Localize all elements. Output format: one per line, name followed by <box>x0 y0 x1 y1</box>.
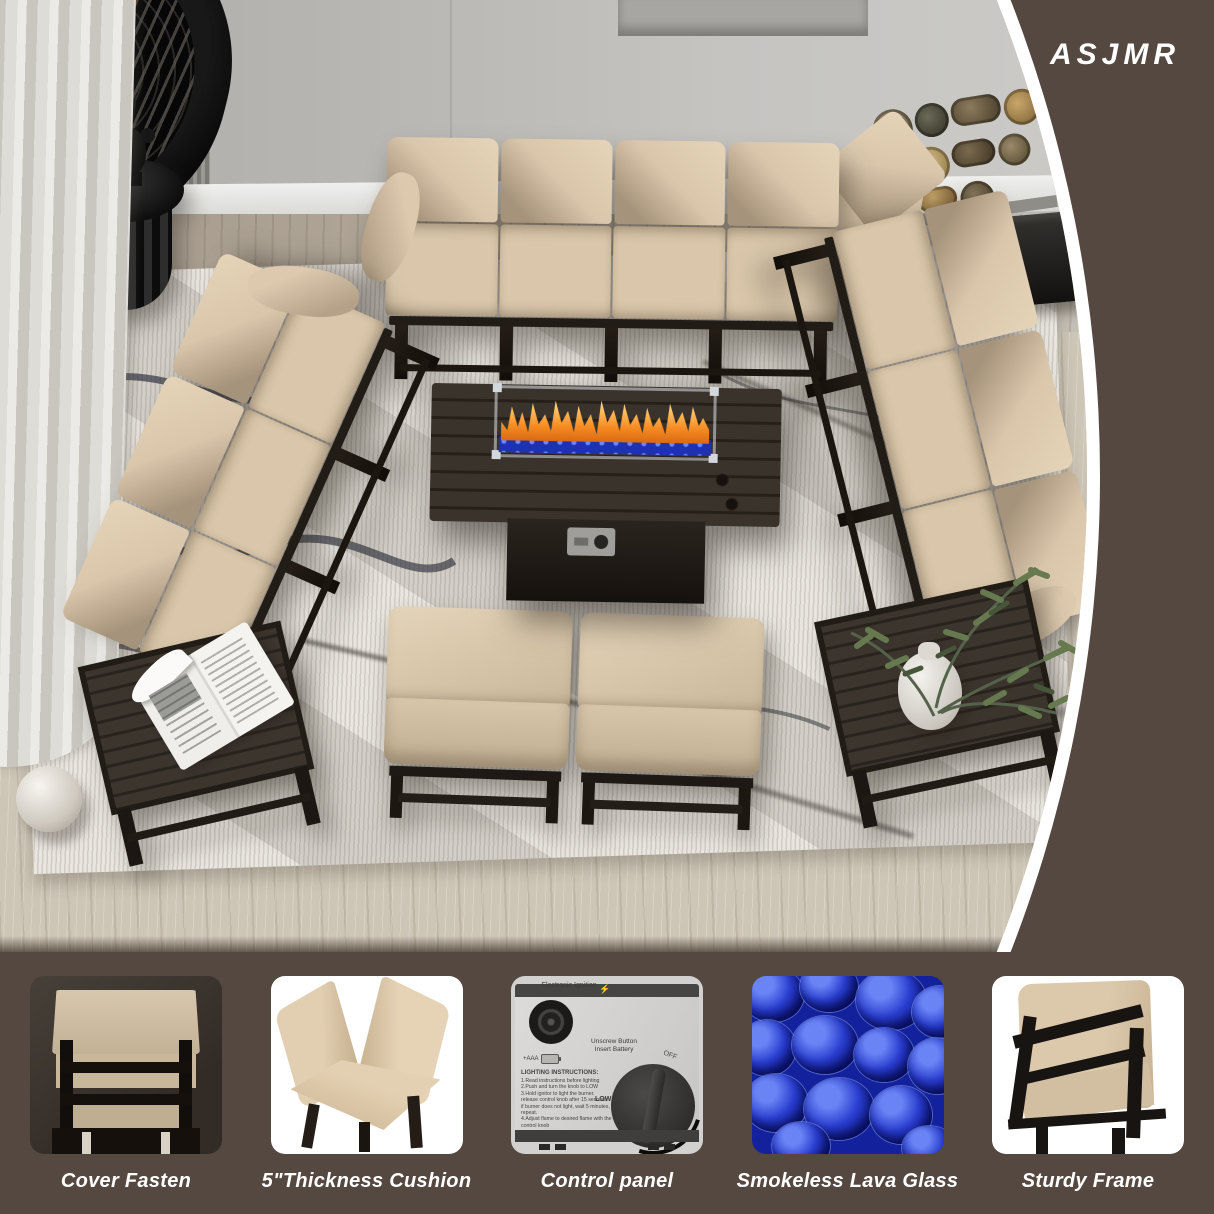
sofa-leg <box>773 244 829 270</box>
feature-caption: 5"Thickness Cushion <box>262 1170 472 1193</box>
cover-fasten-thumbnail <box>30 976 222 1154</box>
panel-foot <box>539 1144 550 1150</box>
glass-bead <box>854 1028 914 1082</box>
seat-cushion <box>386 605 573 707</box>
back-cushion <box>614 140 726 226</box>
back-cushion <box>500 138 612 224</box>
glass-bead <box>752 1020 796 1076</box>
log <box>950 137 998 170</box>
feature-strip: Cover Fasten 5"Thickness Cushion Electro… <box>0 952 1214 1214</box>
battery-icon <box>541 1054 559 1064</box>
back-cushion <box>575 704 761 776</box>
panel-foot <box>555 1144 566 1150</box>
control-panel-thumbnail: Electronic Ignition ⚡ +AAA Unscrew Butto… <box>511 976 703 1154</box>
frame-post <box>1126 1028 1144 1138</box>
feature-lava-glass: Smokeless Lava Glass <box>752 976 944 1214</box>
ignition-button <box>529 1000 573 1044</box>
seat-cushion <box>499 224 612 318</box>
knob-low-label: LOW <box>595 1096 611 1103</box>
battery-row: +AAA <box>523 1054 559 1064</box>
feature-caption: Sturdy Frame <box>1022 1170 1155 1193</box>
panel-bottom-bar <box>515 1130 699 1142</box>
brand-logo: ASJMR <box>1050 38 1180 72</box>
armless-chair <box>575 612 765 788</box>
back-cushions <box>387 137 840 227</box>
sheer-curtain <box>0 0 136 770</box>
feature-caption: Cover Fasten <box>61 1170 191 1193</box>
lava-glass-thumbnail <box>752 976 944 1154</box>
seat-cushion <box>612 226 725 320</box>
wall-recess <box>618 0 868 36</box>
panel-foot <box>664 1144 675 1150</box>
chair-foot <box>82 1132 91 1154</box>
glass-bracket <box>493 383 502 392</box>
feature-caption: Smokeless Lava Glass <box>737 1170 959 1193</box>
chair-foot <box>161 1132 170 1154</box>
product-image: ASJMR Cover Fasten <box>0 0 1214 1214</box>
feature-caption: Control panel <box>541 1170 674 1193</box>
frame-bar <box>60 1094 192 1105</box>
lightning-icon: ⚡ <box>599 984 610 995</box>
chair-base <box>52 1128 200 1154</box>
seat-cushion <box>578 612 765 714</box>
hero-section: ASJMR <box>0 0 1214 952</box>
fire-pit-table <box>428 383 782 605</box>
chair-leg <box>359 1122 370 1152</box>
log <box>912 101 951 140</box>
sectional-sofa-top <box>384 137 839 385</box>
glass-bracket <box>710 387 719 396</box>
panel-slot <box>574 537 588 545</box>
living-room-photo <box>0 0 1214 952</box>
cushion-thumbnail <box>271 976 463 1154</box>
control-panel-front <box>567 527 615 556</box>
seat-cushions <box>385 223 838 321</box>
burner <box>499 390 712 456</box>
table-base <box>506 518 705 603</box>
olive-plant <box>826 508 1086 738</box>
panel-foot <box>648 1144 659 1150</box>
chair-backrest <box>52 990 200 1054</box>
decor-sphere <box>16 766 82 832</box>
feature-cover-fasten: Cover Fasten <box>30 976 222 1214</box>
photo-bottom-shade <box>0 936 1214 952</box>
armless-chairs <box>383 605 765 788</box>
log <box>996 131 1033 168</box>
back-cushion <box>728 142 840 228</box>
frame-bar <box>60 1062 192 1073</box>
back-cushion <box>384 697 570 769</box>
glass-bead <box>800 976 858 1012</box>
chair-leg <box>1036 1126 1048 1154</box>
sofa-legs <box>394 325 827 385</box>
control-knob <box>594 535 608 549</box>
battery-label: +AAA <box>523 1056 539 1062</box>
battery-instructions: Unscrew Button Insert Battery <box>577 1038 651 1054</box>
instructions-title: LIGHTING INSTRUCTIONS: <box>521 1070 623 1076</box>
glass-bead <box>908 1038 944 1094</box>
ignition-label: Electronic Ignition <box>541 982 597 990</box>
glass-bead <box>792 1016 858 1074</box>
unscrew-label: Unscrew Button <box>577 1038 651 1046</box>
chair-leg <box>1112 1128 1125 1154</box>
feature-thickness-cushion: 5"Thickness Cushion <box>271 976 463 1214</box>
insert-label: Insert Battery <box>577 1046 651 1054</box>
feature-sturdy-frame: Sturdy Frame <box>992 976 1184 1214</box>
chair-leg <box>301 1103 319 1148</box>
sturdy-frame-thumbnail <box>992 976 1184 1154</box>
armless-chair <box>383 605 573 781</box>
glass-bead <box>752 976 804 1022</box>
feature-control-panel: Electronic Ignition ⚡ +AAA Unscrew Butto… <box>511 976 703 1214</box>
